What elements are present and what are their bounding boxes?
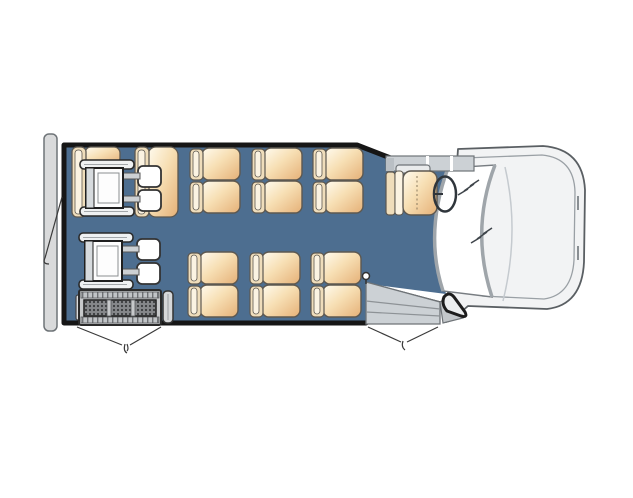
- entry-door-swing-line: [368, 327, 438, 350]
- bus-floorplan-diagram: [0, 0, 633, 498]
- page-background: [0, 0, 633, 498]
- passenger-seat-double: [311, 252, 361, 317]
- driver-seat: [386, 165, 437, 215]
- rear-bumper: [44, 134, 57, 331]
- passenger-seat-double: [252, 148, 302, 213]
- passenger-seat-double: [188, 252, 238, 317]
- wheelchair-lift: [76, 290, 173, 325]
- lift-door-swing-line: [77, 327, 161, 353]
- passenger-seat-double: [190, 148, 240, 213]
- passenger-seat-double: [250, 252, 300, 317]
- passenger-seat-double: [313, 148, 363, 213]
